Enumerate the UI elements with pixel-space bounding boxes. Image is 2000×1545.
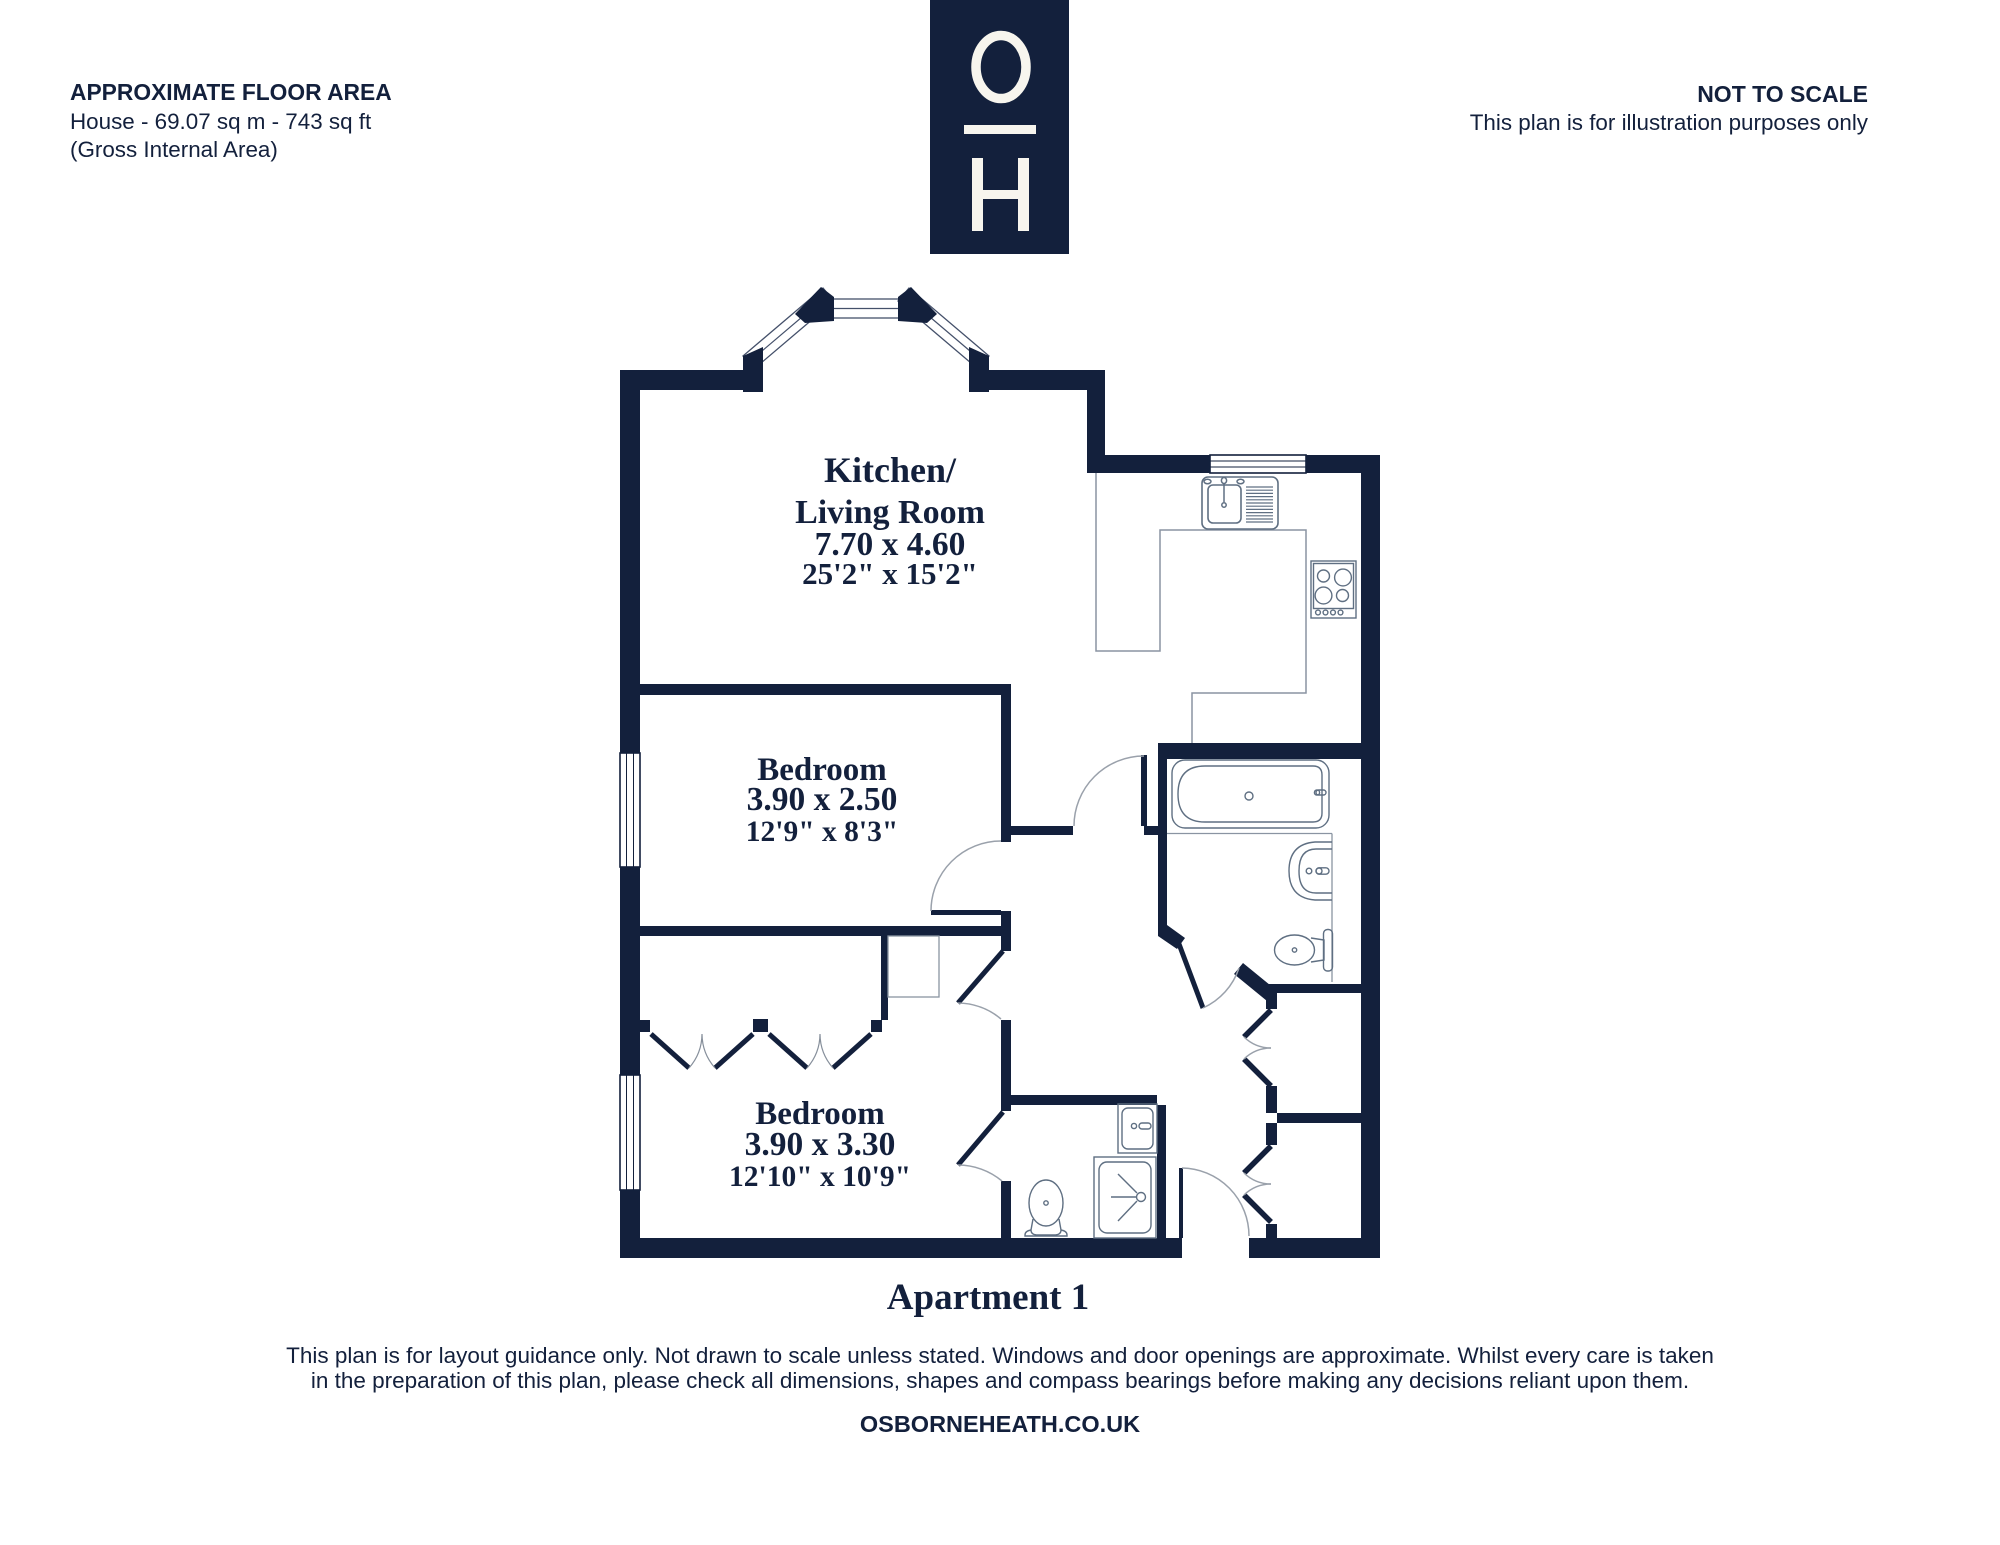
svg-text:NOT TO SCALE: NOT TO SCALE: [1697, 81, 1868, 107]
svg-text:Apartment 1: Apartment 1: [887, 1277, 1089, 1318]
svg-text:12'9" x 8'3": 12'9" x 8'3": [746, 816, 898, 848]
svg-text:(Gross Internal Area): (Gross Internal Area): [70, 137, 278, 162]
svg-text:3.90 x 3.30: 3.90 x 3.30: [745, 1126, 896, 1163]
svg-text:This plan is for layout guidan: This plan is for layout guidance only. N…: [286, 1343, 1714, 1368]
svg-text:Kitchen/: Kitchen/: [824, 450, 957, 490]
svg-text:12'10" x 10'9": 12'10" x 10'9": [729, 1161, 911, 1193]
svg-text:3.90 x 2.50: 3.90 x 2.50: [747, 781, 898, 818]
svg-text:25'2" x 15'2": 25'2" x 15'2": [802, 556, 978, 591]
svg-text:in the preparation of this pla: in the preparation of this plan, please …: [311, 1368, 1689, 1393]
svg-text:House - 69.07 sq m - 743 sq ft: House - 69.07 sq m - 743 sq ft: [70, 109, 372, 134]
svg-text:OSBORNEHEATH.CO.UK: OSBORNEHEATH.CO.UK: [860, 1411, 1140, 1437]
svg-text:This plan is for illustration: This plan is for illustration purposes o…: [1470, 110, 1869, 135]
svg-text:APPROXIMATE FLOOR AREA: APPROXIMATE FLOOR AREA: [70, 79, 392, 105]
